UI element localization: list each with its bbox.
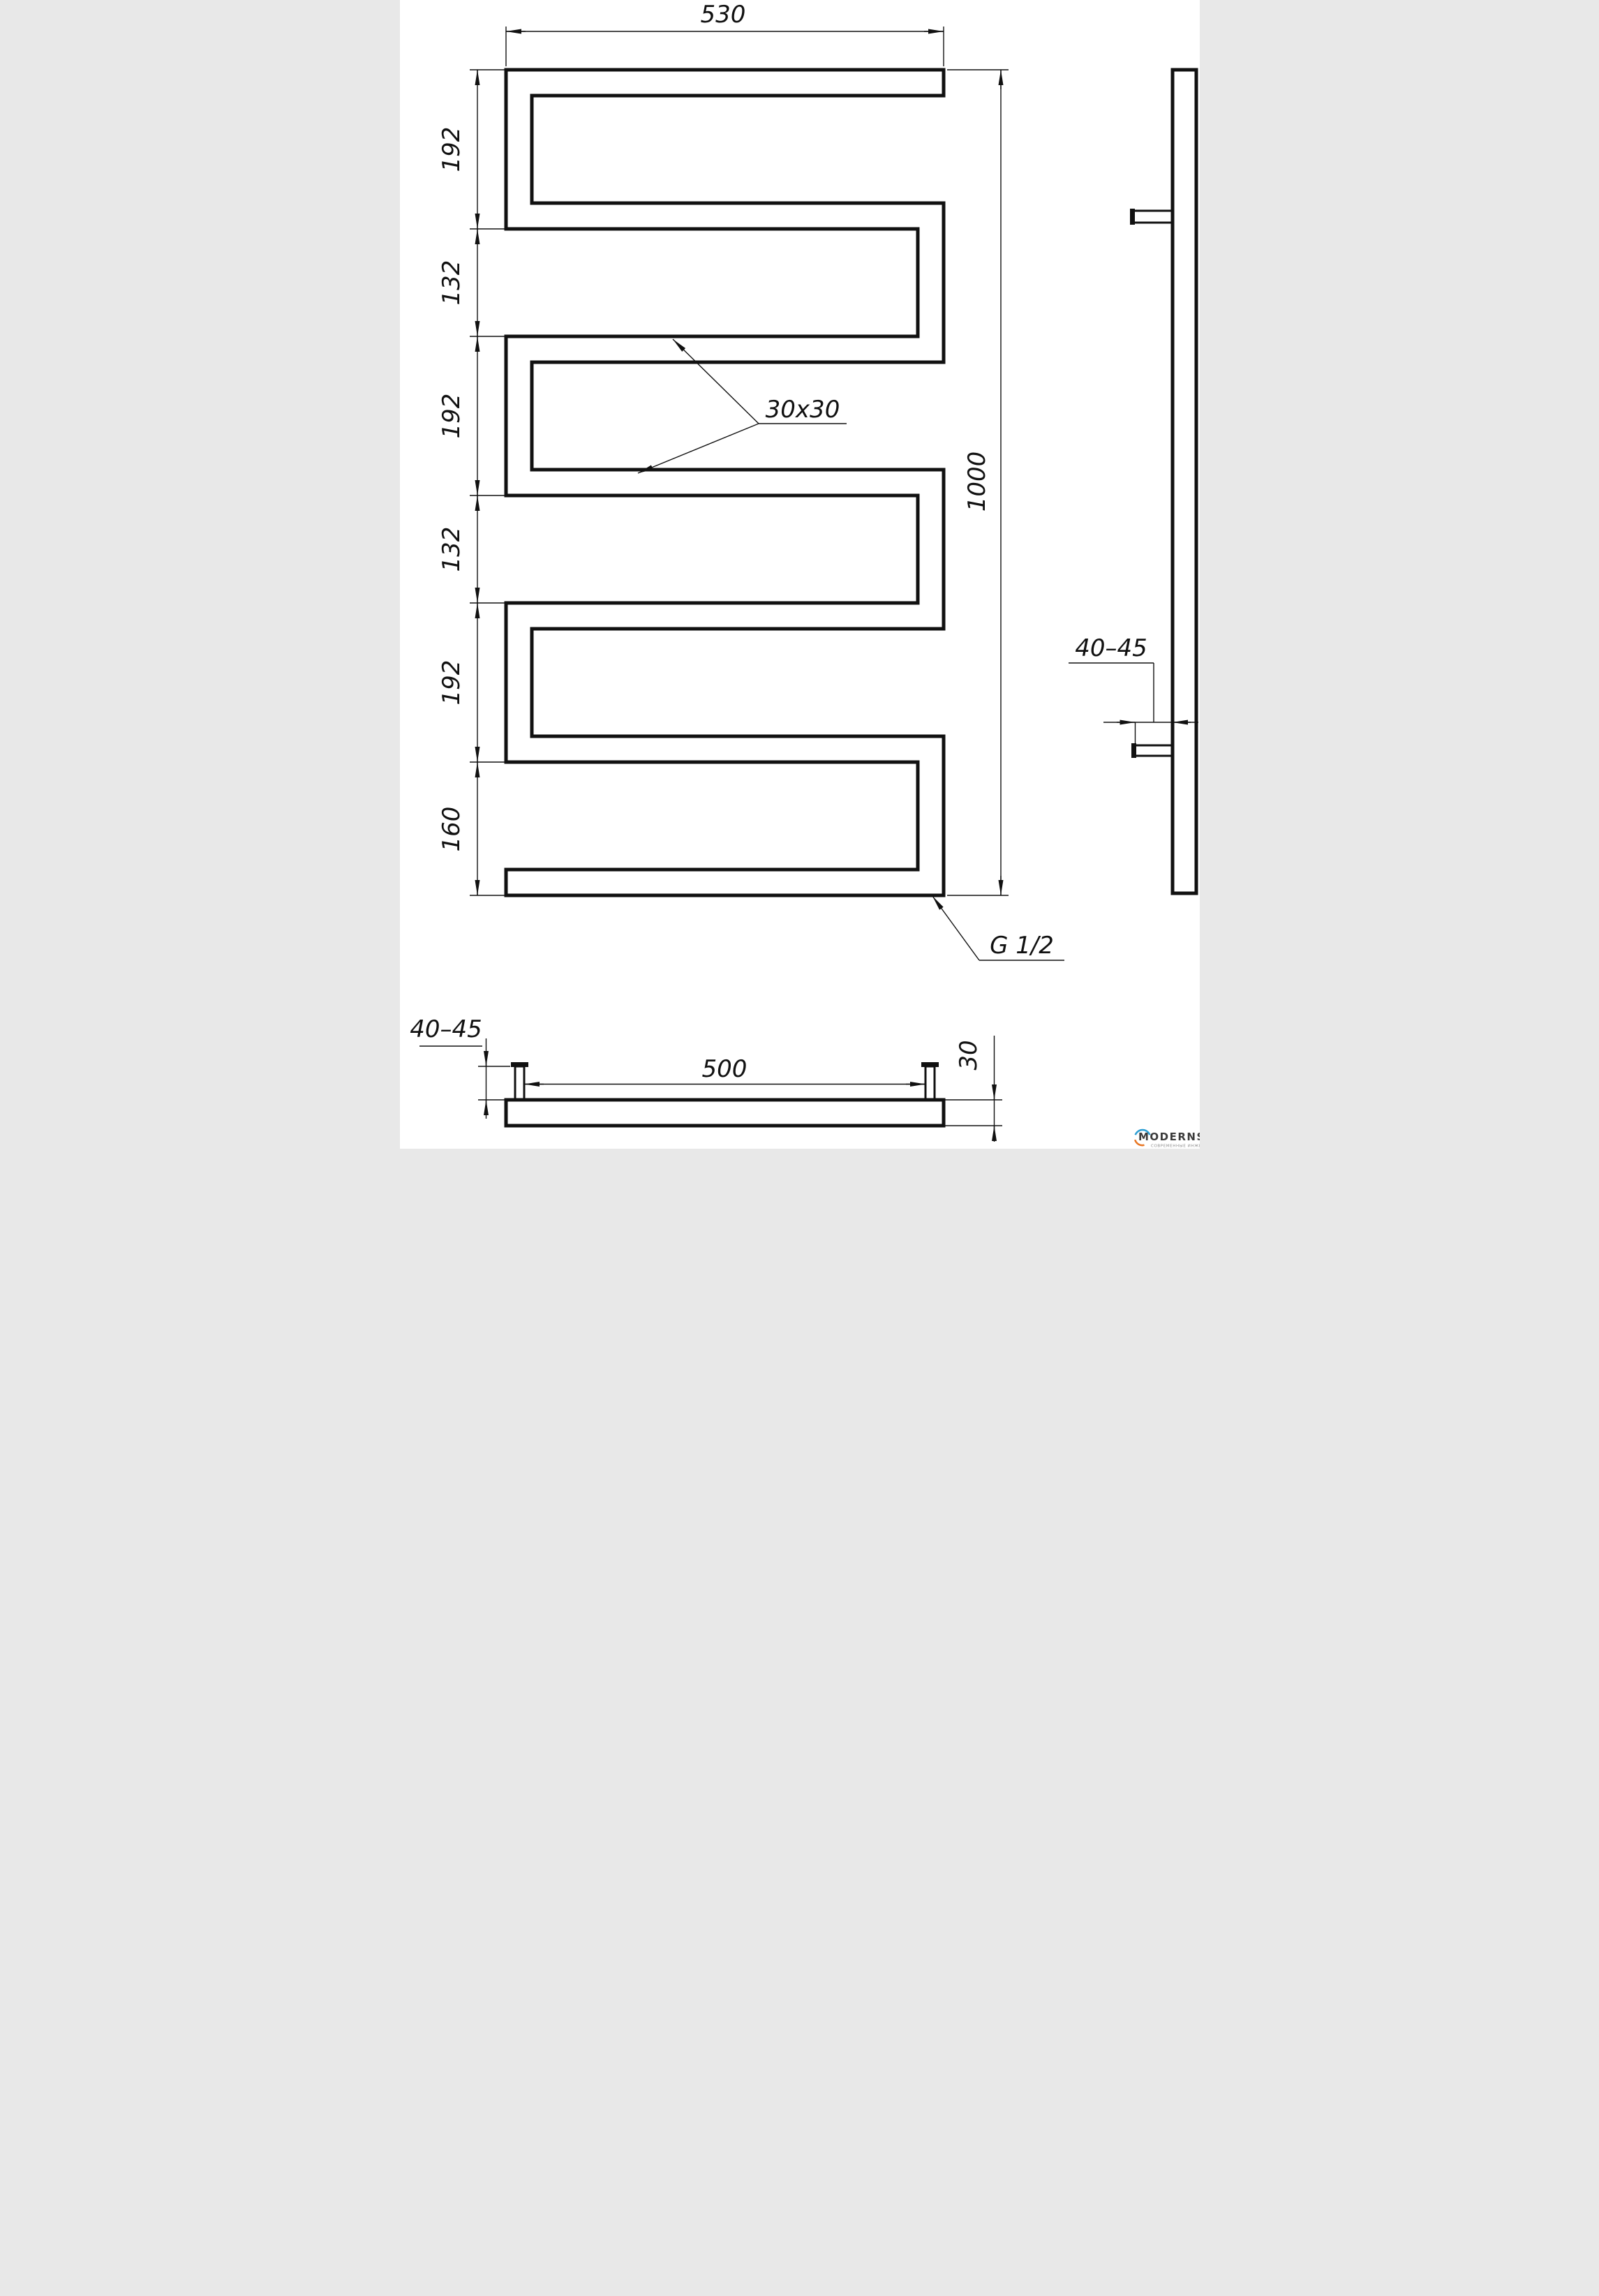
technical-drawing: 530 192 132 192 132 192 160 (400, 0, 1200, 1149)
dim-label-530: 530 (700, 1, 745, 29)
dim-brackets-span-500: 500 (524, 1055, 925, 1084)
bottom-view: 40–45 500 30 (410, 1015, 1002, 1142)
dim-label-132-2: 132 (438, 527, 466, 572)
logo-brand-text: MODERNSYS (1138, 1131, 1200, 1143)
serpentine-tube-outline (506, 70, 944, 895)
dim-label-192-3: 192 (438, 660, 466, 706)
bottom-bracket-right (921, 1062, 939, 1100)
dim-left-cascade: 192 132 192 132 192 160 (438, 70, 505, 895)
callout-profile-30x30: 30x30 (638, 339, 847, 473)
side-view: 40–45 (1069, 70, 1198, 893)
callout-thread-g12: G 1/2 (932, 896, 1064, 960)
dim-label-160: 160 (438, 807, 466, 852)
side-tube (1173, 70, 1196, 893)
dim-label-192-2: 192 (438, 394, 466, 439)
bottom-tube (506, 1100, 944, 1126)
dim-label-192-1: 192 (438, 127, 466, 172)
side-offset-label: 40–45 (1075, 634, 1147, 662)
side-bracket-bottom (1131, 743, 1173, 758)
bottom-bracket-left (511, 1062, 528, 1100)
dim-height-1000: 1000 (947, 70, 1009, 895)
dim-width-530: 530 (506, 1, 944, 66)
drawing-sheet: 530 192 132 192 132 192 160 (400, 0, 1200, 1149)
side-bracket-top (1130, 209, 1173, 225)
logo-tagline-text: СОВРЕМЕННЫЕ ИНЖЕНЕРНЫЕ СИСТЕМЫ (1151, 1145, 1200, 1149)
dim-side-offset-40-45: 40–45 (1069, 634, 1198, 744)
dim-tube-depth-30: 30 (945, 1036, 1002, 1142)
profile-label: 30x30 (765, 396, 840, 424)
thread-label: G 1/2 (990, 932, 1054, 960)
span-label-500: 500 (701, 1055, 747, 1083)
dim-bottom-offset-40-45: 40–45 (410, 1015, 510, 1119)
bottom-offset-label: 40–45 (410, 1015, 482, 1043)
dim-label-1000: 1000 (963, 452, 991, 512)
depth-label-30: 30 (955, 1040, 983, 1070)
dim-label-132-1: 132 (438, 260, 466, 306)
front-view: 530 192 132 192 132 192 160 (438, 1, 1064, 960)
brand-logo: MODERNSYS СОВРЕМЕННЫЕ ИНЖЕНЕРНЫЕ СИСТЕМЫ (1135, 1130, 1200, 1148)
